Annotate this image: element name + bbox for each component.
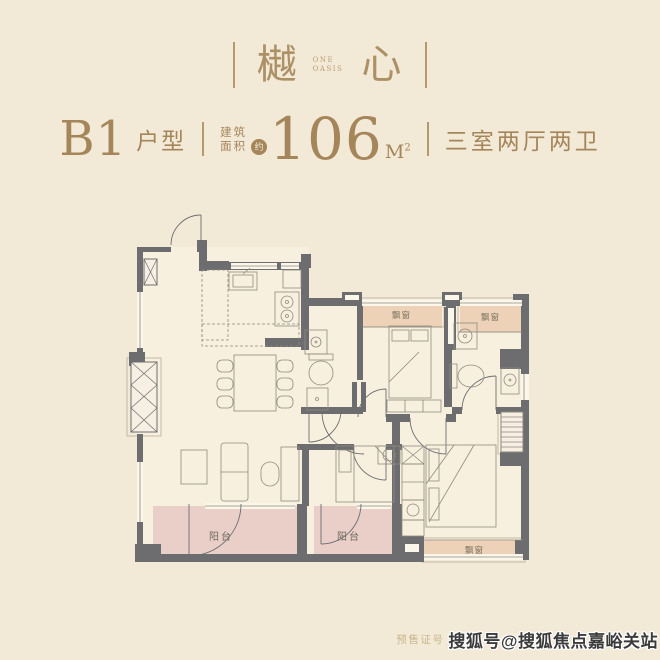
approx-badge: 约 xyxy=(251,139,267,155)
logo-right-bar-icon xyxy=(425,42,427,88)
floorplan-page: 樾 ONE OASIS 心 B1 户型 建筑 面积 约 106 M2 三室两厅两… xyxy=(0,0,660,660)
brand-logo: 樾 ONE OASIS 心 xyxy=(0,0,660,88)
area-value: 106 xyxy=(269,112,383,166)
logo-subtitle: ONE OASIS xyxy=(313,56,344,74)
floor-plan-svg: 阳台 阳台 飘窗 飘窗 飘窗 xyxy=(109,192,551,584)
logo-char-left: 樾 xyxy=(257,42,299,88)
logo-subtitle-line2: OASIS xyxy=(313,65,344,74)
unit-type-label: 户型 xyxy=(136,122,186,156)
floor-zones xyxy=(127,247,526,562)
area-unit: M2 xyxy=(385,141,411,163)
bay-window-bottom-right-label: 飘窗 xyxy=(465,545,484,555)
balcony-left-label: 阳台 xyxy=(209,530,233,543)
header-divider-left xyxy=(202,122,204,156)
area-label: 建筑 面积 xyxy=(220,125,247,153)
header-divider-right xyxy=(427,122,429,156)
logo-left-bar-icon xyxy=(233,42,235,88)
watermark-text: 搜狐号@搜狐焦点嘉峪关站 xyxy=(448,627,658,652)
bay-window-top-middle-label: 飘窗 xyxy=(392,310,411,320)
bay-window-top-right-label: 飘窗 xyxy=(481,312,500,322)
unit-block: B1 户型 xyxy=(59,115,186,163)
unit-info-header: B1 户型 建筑 面积 约 106 M2 三室两厅两卫 xyxy=(0,112,660,166)
balcony-middle-label: 阳台 xyxy=(337,530,361,543)
logo-char-right: 心 xyxy=(361,42,403,88)
floor-plan: 阳台 阳台 飘窗 飘窗 飘窗 xyxy=(109,192,551,584)
footer: 预售证号 搜狐号@搜狐焦点嘉峪关站 xyxy=(396,627,658,652)
room-summary: 三室两厅两卫 xyxy=(445,122,601,156)
logo-subtitle-line1: ONE xyxy=(313,56,334,65)
unit-code: B1 xyxy=(59,115,127,163)
presale-license-label: 预售证号 xyxy=(396,632,444,647)
area-block: 建筑 面积 约 106 M2 xyxy=(220,112,411,166)
